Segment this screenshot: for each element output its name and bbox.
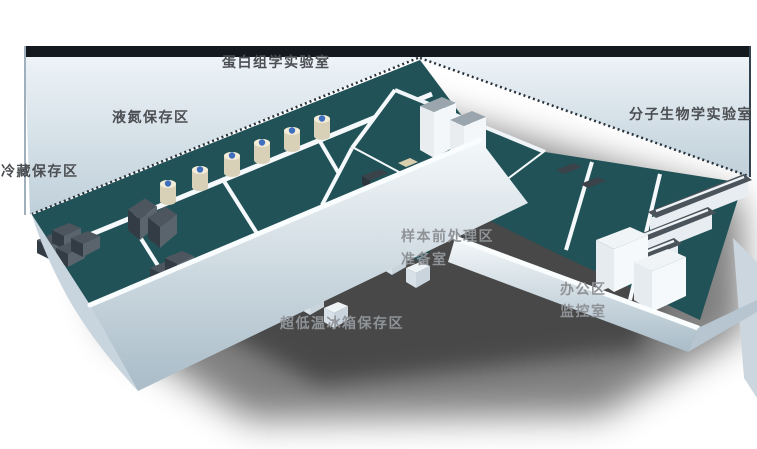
label-office-area: 办公区 — [560, 283, 607, 297]
label-preparation-room: 准备室 — [401, 253, 448, 267]
label-molecular-biology-lab: 分子生物学实验室 — [629, 108, 753, 122]
label-liquid-nitrogen-storage: 液氮保存区 — [112, 111, 190, 125]
floorplan-render — [0, 0, 757, 449]
label-cold-storage: 冷藏保存区 — [1, 165, 79, 179]
label-ultra-low-freezer-storage: 超低温冰箱保存区 — [280, 317, 404, 331]
label-sample-pretreatment: 样本前处理区 — [401, 230, 494, 244]
label-monitoring-room: 监控室 — [560, 305, 607, 319]
lab-floorplan-scene: 蛋白组学实验室 液氮保存区 冷藏保存区 分子生物学实验室 样本前处理区 准备室 … — [0, 0, 757, 449]
label-proteomics-lab: 蛋白组学实验室 — [222, 56, 331, 70]
